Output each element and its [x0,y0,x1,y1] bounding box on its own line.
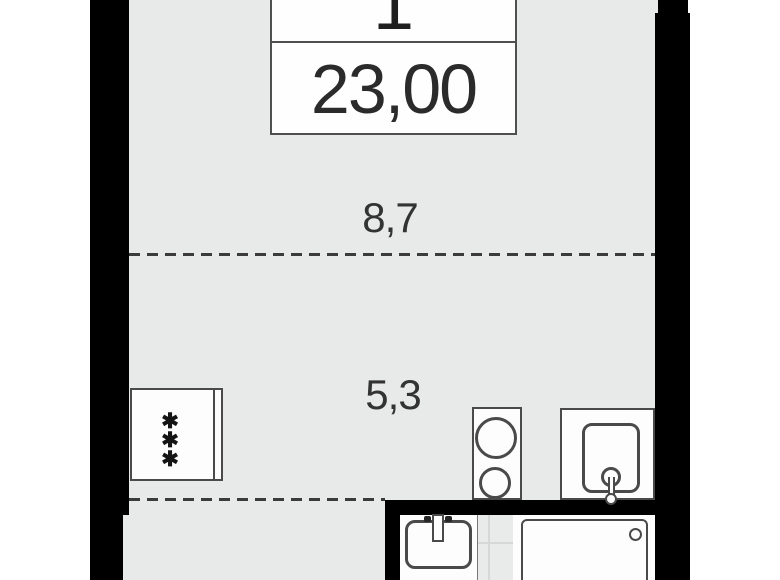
wall-right-notch-outer [688,0,690,13]
floor-plan: 1 23,00 8,7 5,3 ✱ ✱ ✱ [0,0,780,580]
washing-machine-panel-line [213,390,215,479]
unit-label-card: 1 23,00 [270,0,517,135]
unit-number-section: 1 [272,0,515,43]
tap-handle-right-icon [445,516,452,522]
zone-divider-lower [129,498,385,501]
wall-right [655,0,690,580]
dimension-label-upper: 8,7 [340,197,440,239]
tap-handle-left-icon [424,516,431,522]
kitchen-sink-tap-base [605,493,617,505]
bathroom-sink-tap-icon [432,514,444,542]
washing-machine: ✱ ✱ ✱ [130,388,223,481]
washing-machine-symbol-icon: ✱ ✱ ✱ [132,412,208,469]
unit-number: 1 [272,0,515,41]
stove-burner-small-icon [479,467,511,499]
bathroom-tile-line-vertical [488,515,490,580]
wall-left-upper [90,0,129,515]
shower-tray-rim [521,519,648,580]
wall-left-lower [90,515,123,580]
stove-burner-large-icon [475,417,517,459]
wall-right-notch [655,0,658,13]
unit-area-value: 23,00 [272,43,515,135]
bathroom-wall-left [385,500,400,580]
zone-divider-upper [129,253,655,256]
dimension-label-lower: 5,3 [343,374,443,416]
shower-drain-icon [629,528,642,541]
